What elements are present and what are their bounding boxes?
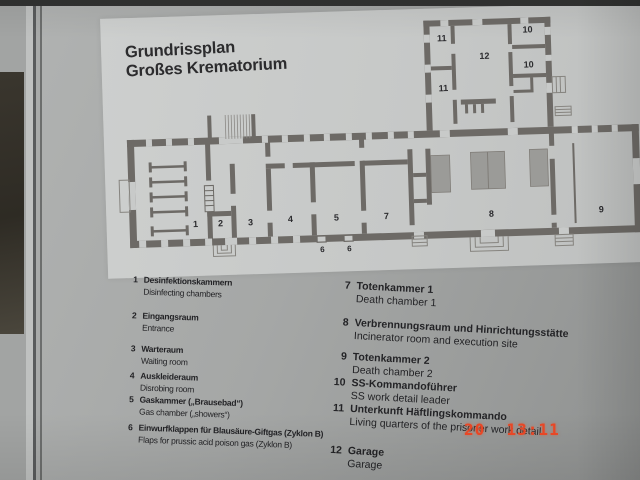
legend-number: 1 xyxy=(125,274,138,297)
legend-item: 3 Warteraum Waiting room xyxy=(123,343,189,368)
legend-item: 4 Auskleideraum Disrobing room xyxy=(122,370,198,396)
camera-timestamp: 20 13:11 xyxy=(464,420,560,439)
legend-left-column: 1 Desinfektionskammern Disinfecting cham… xyxy=(119,272,356,480)
legend-number: 9 xyxy=(331,350,347,377)
legend-item: 6 Einwurfklappen für Blausäure-Giftgas (… xyxy=(120,422,323,452)
neighbor-panel-photo xyxy=(0,72,24,334)
floor-plan-walls xyxy=(123,14,640,248)
room-label: 3 xyxy=(248,217,253,227)
legend-item: 12 Garage Garage xyxy=(326,444,384,473)
room-label: 6 xyxy=(347,244,352,253)
room-label: 8 xyxy=(489,209,494,219)
legend-english: Disrobing room xyxy=(140,382,198,396)
photo-of-information-panel: Grundrissplan Großes Krematorium xyxy=(0,0,640,480)
legend-right-column: 7 Totenkammer 1 Death chamber 1 8 Verbre… xyxy=(326,277,640,480)
interior-stair-symbol xyxy=(204,185,214,211)
legend-english: Death chamber 1 xyxy=(356,293,437,310)
floor-plan-sheet: Grundrissplan Großes Krematorium xyxy=(100,1,640,279)
room-label: 2 xyxy=(218,218,223,228)
room-label: 9 xyxy=(599,204,604,214)
legend-number: 11 xyxy=(328,402,344,429)
room-label: 11 xyxy=(438,83,448,93)
legend-number: 12 xyxy=(326,444,342,471)
room-label: 7 xyxy=(384,211,389,221)
legend-item: 2 Eingangsraum Entrance xyxy=(124,310,199,336)
photo-top-frame xyxy=(0,0,640,6)
room-label: 12 xyxy=(479,51,489,61)
legend-number: 10 xyxy=(329,376,345,403)
floor-plan: 1 2 3 4 5 6 6 7 8 9 10 10 11 11 12 xyxy=(100,1,640,279)
room-label: 10 xyxy=(524,59,534,69)
garage-stair-symbol xyxy=(461,99,496,114)
legend-number: 3 xyxy=(123,343,136,366)
legend-number: 4 xyxy=(122,370,135,393)
legend-english: Disinfecting chambers xyxy=(143,286,232,301)
legend-item: 1 Desinfektionskammern Disinfecting cham… xyxy=(125,274,232,301)
legend-number: 8 xyxy=(333,316,349,343)
legend-english: Entrance xyxy=(142,322,198,335)
legend-english: Gas chamber („showers“) xyxy=(139,406,243,421)
neighbor-panel xyxy=(0,0,26,480)
room-label: 10 xyxy=(522,24,532,34)
legend-item: 8 Verbrennungsraum und Hinrichtungsstätt… xyxy=(333,316,569,354)
legend-number: 7 xyxy=(335,279,351,306)
legend-english: Garage xyxy=(347,458,384,473)
legend-item: 7 Totenkammer 1 Death chamber 1 xyxy=(335,279,438,310)
legend-english: Waiting room xyxy=(141,355,188,368)
info-panel: Grundrissplan Großes Krematorium xyxy=(42,0,640,480)
legend-item: 5 Gaskammer („Brausebad“) Gas chamber („… xyxy=(121,394,243,421)
room-label: 6 xyxy=(320,245,325,254)
entrance-stairs-hatch xyxy=(225,114,250,139)
room-label: 11 xyxy=(437,33,447,43)
legend-number: 2 xyxy=(124,310,137,333)
disinfection-chamber-symbols xyxy=(149,161,189,236)
room-label: 5 xyxy=(334,213,339,223)
oven-symbol xyxy=(430,149,548,193)
panel-edge xyxy=(26,0,33,480)
room-label: 1 xyxy=(193,219,198,229)
room-label: 4 xyxy=(288,214,293,224)
legend-number: 5 xyxy=(121,394,134,417)
legend-number: 6 xyxy=(120,422,133,445)
